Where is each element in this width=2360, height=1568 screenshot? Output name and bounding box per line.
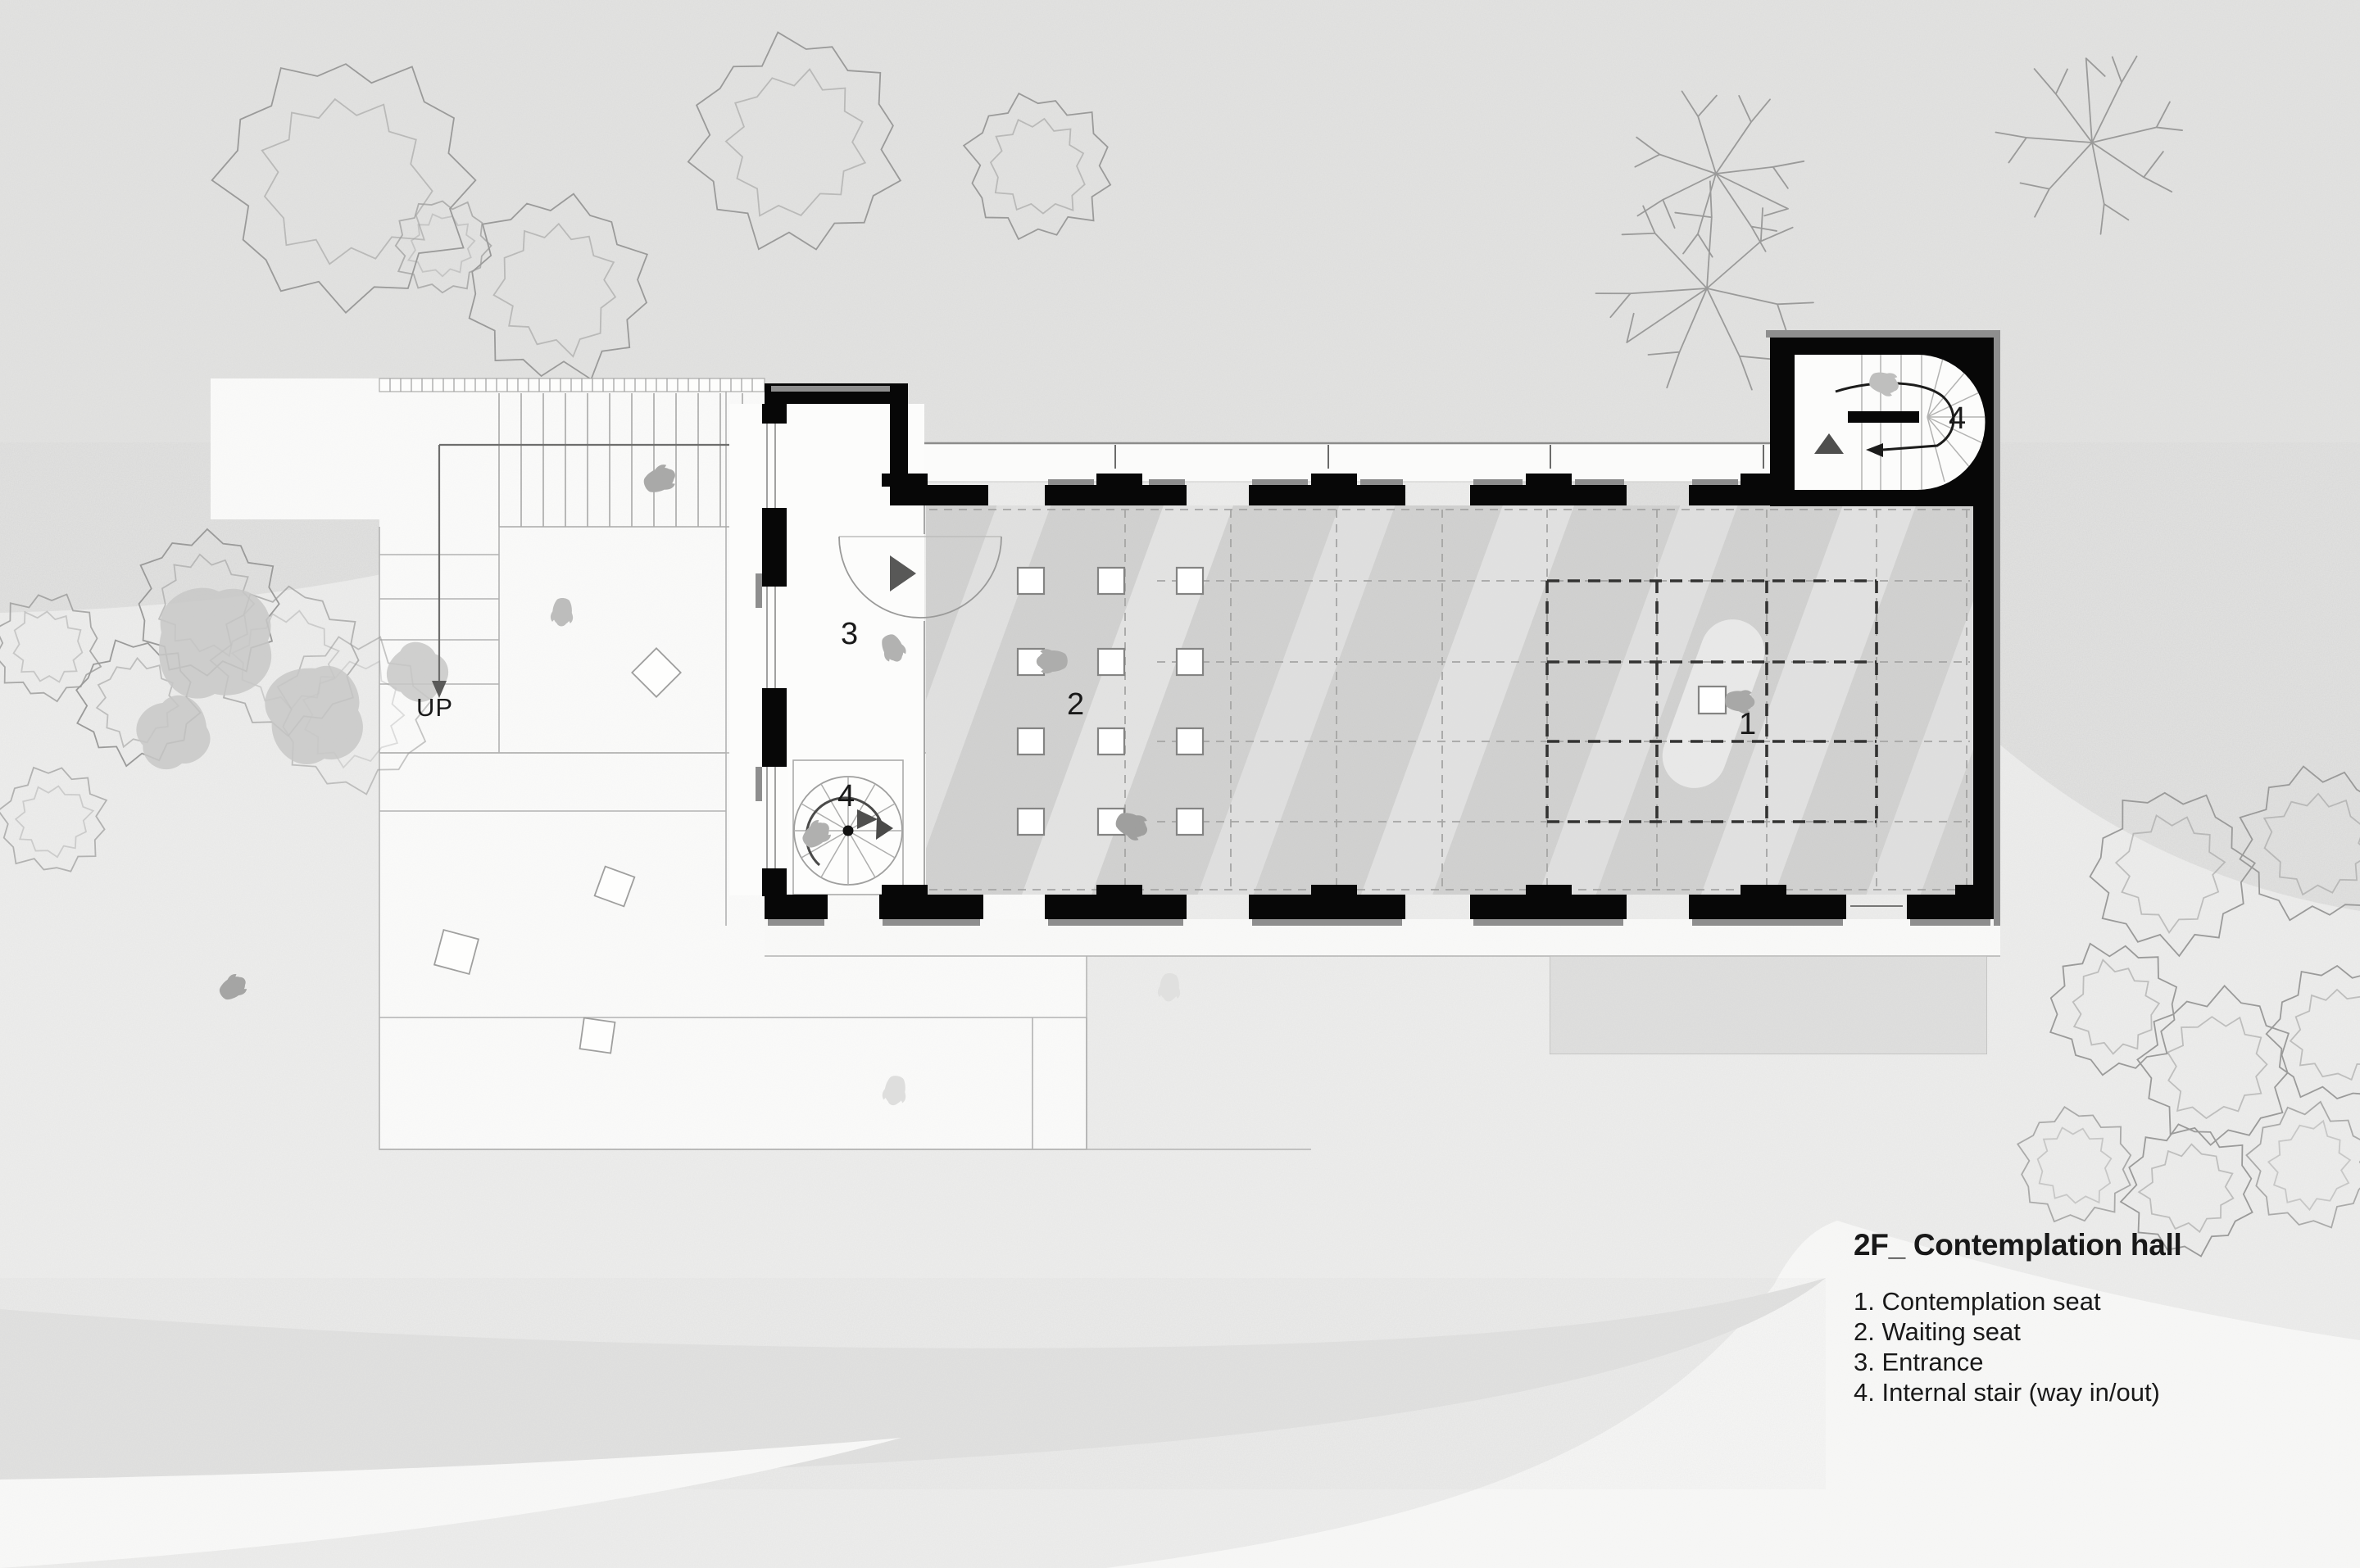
waiting-seat	[1098, 568, 1124, 594]
legend-item-2: 2. Waiting seat	[1854, 1317, 2021, 1346]
contemplation-seat	[1699, 687, 1726, 714]
label-stair-upper: 4	[1949, 401, 1966, 436]
east-wall	[1973, 506, 1994, 919]
waiting-seat	[1177, 809, 1203, 835]
waiting-seat	[1018, 568, 1044, 594]
label-entrance: 3	[841, 617, 858, 651]
floor-plan-canvas: DN UP 3	[0, 0, 2360, 1568]
legend-item-4: 4. Internal stair (way in/out)	[1854, 1378, 2160, 1407]
waiting-seat	[1018, 728, 1044, 755]
label-up: UP	[416, 693, 453, 722]
legend-item-1: 1. Contemplation seat	[1854, 1287, 2101, 1316]
waiting-seat	[1177, 568, 1203, 594]
stair-divider	[1848, 411, 1919, 423]
waiting-seat	[1098, 728, 1124, 755]
spiral-stair: 4	[788, 758, 905, 895]
stair-head-strip	[379, 378, 765, 392]
legend-title: 2F_ Contemplation hall	[1854, 1228, 2181, 1262]
upper-stair-block: 4	[1766, 330, 2000, 506]
waiting-seat	[1098, 649, 1124, 675]
waiting-seat	[1018, 809, 1044, 835]
spiral-center-dot	[843, 826, 854, 836]
legend-item-3: 3. Entrance	[1854, 1348, 1984, 1376]
label-waiting: 2	[1067, 687, 1084, 722]
waiting-seat	[1177, 649, 1203, 675]
east-wall-cap	[1994, 331, 2000, 926]
label-stair-lower: 4	[837, 779, 855, 813]
waiting-seat	[1177, 728, 1203, 755]
